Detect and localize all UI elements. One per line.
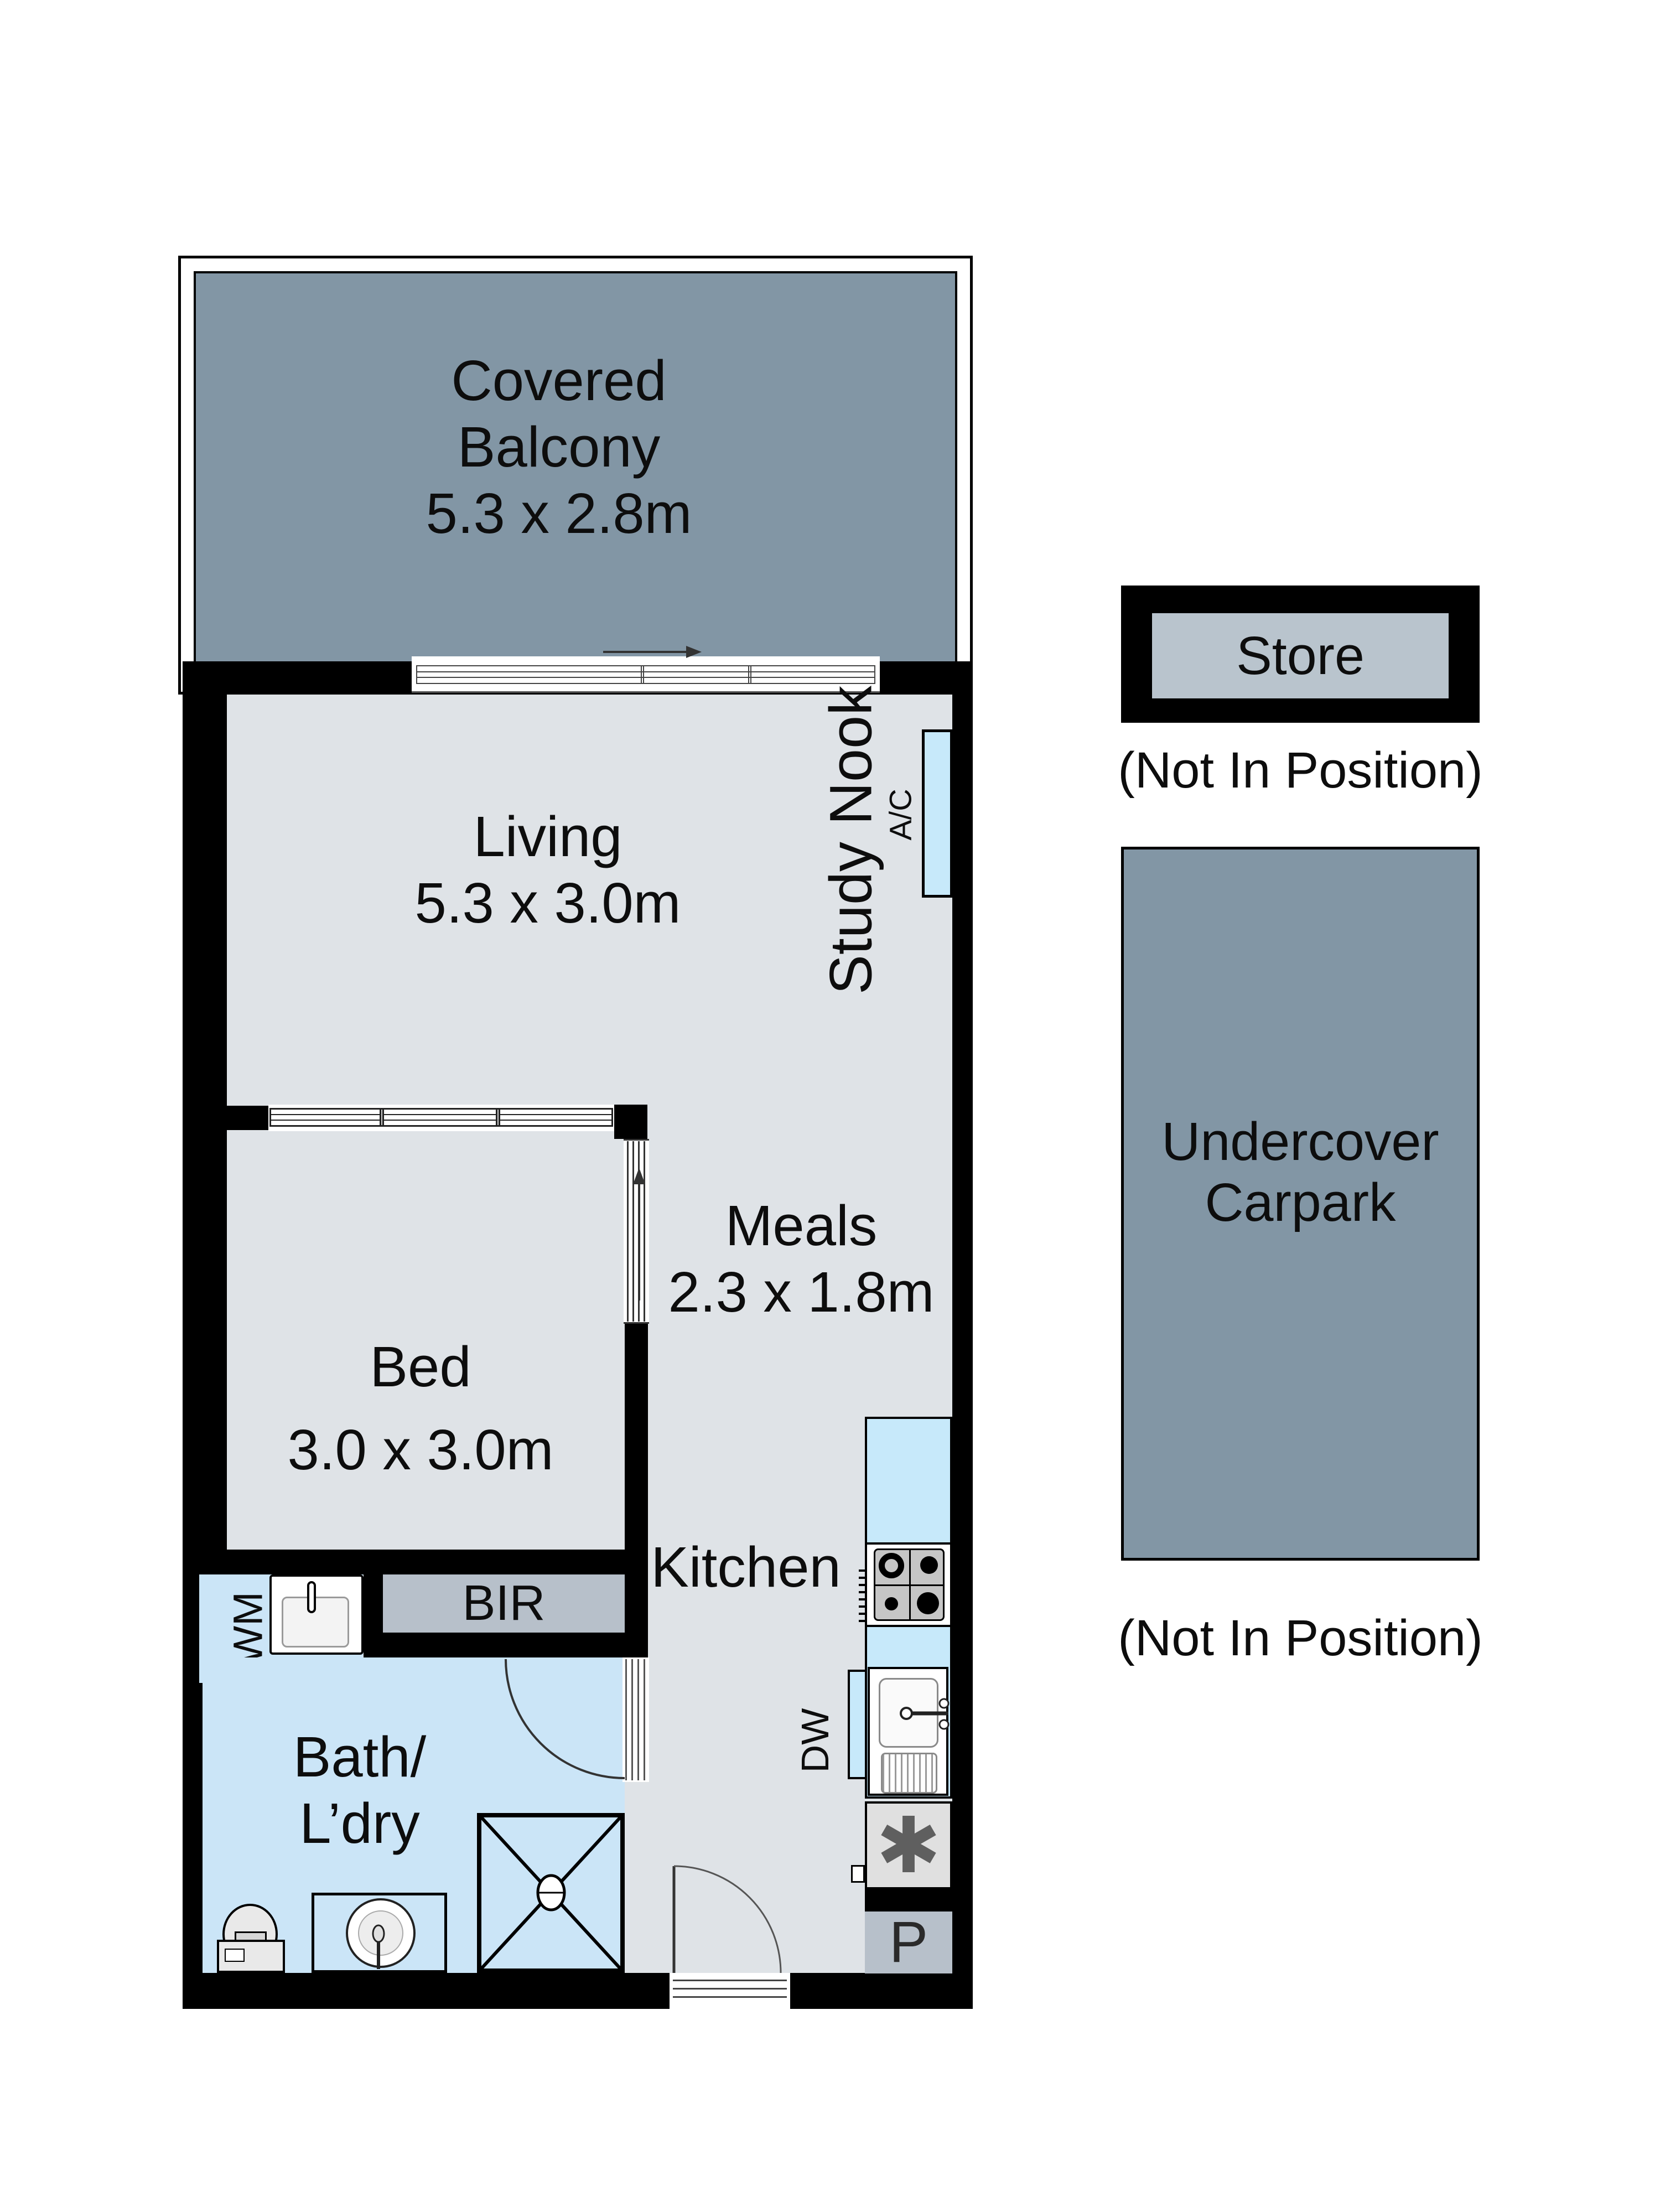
living-dims: 5.3 x 3.0m <box>382 870 714 936</box>
wall-right <box>952 661 973 2009</box>
stove-symbol <box>865 1542 952 1627</box>
study-nook-label: Study Nook <box>816 686 885 994</box>
dw-label: DW <box>793 1708 837 1773</box>
wall-corner-block <box>614 1105 647 1139</box>
asterisk-icon: ✱ <box>876 1807 941 1884</box>
wall-bed-bottom <box>183 1550 647 1574</box>
bed-name: Bed <box>255 1325 587 1408</box>
hot-water-tab <box>851 1865 865 1883</box>
wall-bir-bottom <box>383 1633 625 1657</box>
carpark-line1: Undercover <box>1121 1111 1480 1172</box>
hot-water-unit: ✱ <box>865 1801 952 1889</box>
meals-dims: 2.3 x 1.8m <box>635 1259 967 1325</box>
burner-icon <box>920 1556 938 1574</box>
carpark-note: (Not In Position) <box>1093 1609 1508 1667</box>
store-area: Store <box>1152 613 1449 698</box>
balcony-name-line2: Balcony <box>393 414 725 480</box>
store-label: Store <box>1236 625 1365 687</box>
wall-bottom-right <box>790 1973 973 2009</box>
bath-label: Bath/ L’dry <box>194 1724 526 1857</box>
shower-symbol <box>477 1813 625 1973</box>
meals-label: Meals 2.3 x 1.8m <box>635 1193 967 1325</box>
carpark-label: Undercover Carpark <box>1121 1111 1480 1233</box>
burner-ring-icon <box>879 1553 904 1578</box>
wall-bottom-left <box>183 1973 670 2009</box>
balcony-dims: 5.3 x 2.8m <box>393 480 725 547</box>
carpark-line2: Carpark <box>1121 1172 1480 1233</box>
wall-below-hws <box>865 1889 952 1911</box>
balcony-label: Covered Balcony 5.3 x 2.8m <box>393 348 725 547</box>
balcony-name-line1: Covered <box>393 348 725 414</box>
wall-bed-meals <box>625 1324 648 1657</box>
vanity-symbol <box>312 1893 447 1973</box>
sink-unit-symbol <box>868 1667 948 1796</box>
floorplan-page: Covered Balcony 5.3 x 2.8m Living 5.3 x … <box>0 0 1660 2212</box>
bath-name-line1: Bath/ <box>194 1724 526 1790</box>
toilet-cistern <box>217 1940 285 1973</box>
burner-icon <box>917 1592 939 1614</box>
living-label: Living 5.3 x 3.0m <box>382 804 714 936</box>
bed-window <box>269 1108 613 1127</box>
entry-opening <box>670 1973 790 2009</box>
store-note: (Not In Position) <box>1093 742 1508 800</box>
laundry-trough-symbol <box>269 1574 364 1655</box>
balcony-slider-track <box>416 665 875 684</box>
bath-name-line2: L’dry <box>194 1790 526 1857</box>
pantry-box: P <box>865 1911 952 1973</box>
pantry-text: P <box>889 1909 928 1976</box>
bed-dims: 3.0 x 3.0m <box>255 1408 587 1491</box>
wm-label: WM <box>225 1592 272 1665</box>
bath-door-leaf <box>625 1659 646 1780</box>
dishwasher-unit <box>848 1670 867 1779</box>
living-name: Living <box>382 804 714 870</box>
ac-unit <box>922 729 953 898</box>
stove-vent-marks <box>859 1569 865 1625</box>
bed-label: Bed 3.0 x 3.0m <box>255 1325 587 1491</box>
burner-icon <box>885 1597 898 1610</box>
bir-text: BIR <box>462 1575 545 1632</box>
meals-name: Meals <box>635 1193 967 1259</box>
ac-label: A/C <box>883 789 919 840</box>
balcony-slider-sill-line <box>412 691 880 693</box>
